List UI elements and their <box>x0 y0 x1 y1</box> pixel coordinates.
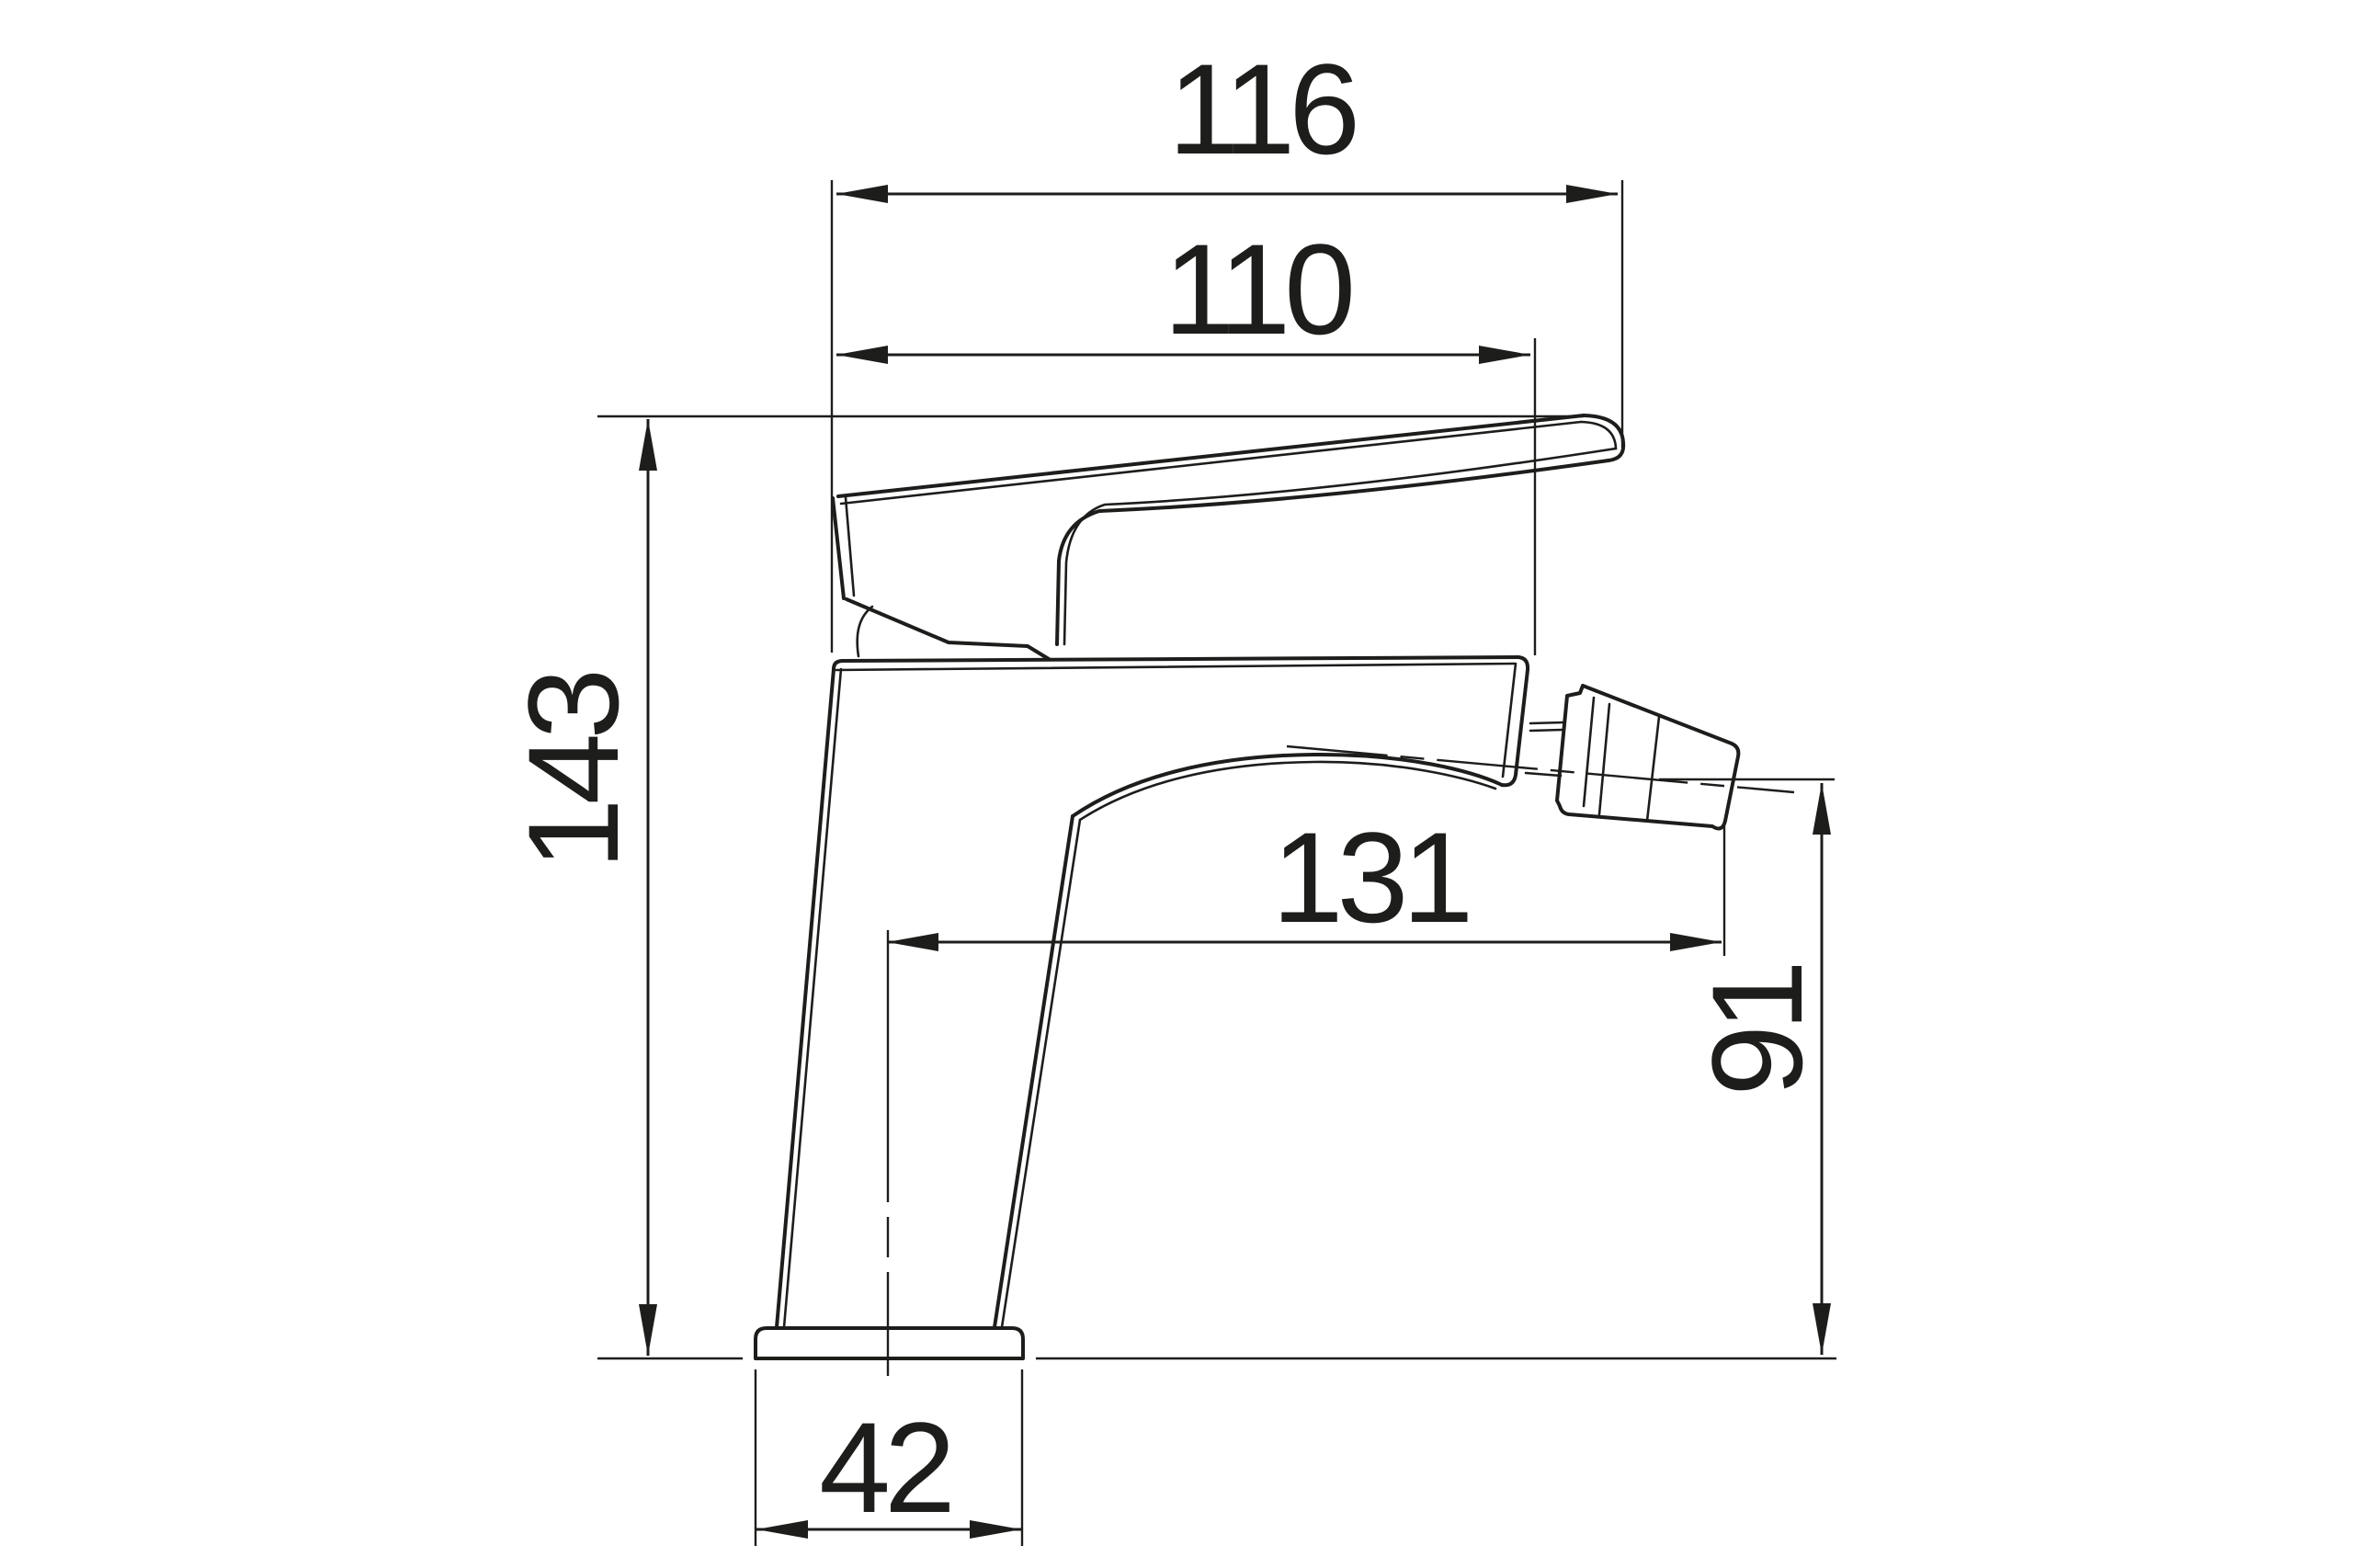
aerator-stem-bottom <box>1526 773 1561 776</box>
handle-tip-cap-inner <box>1581 422 1616 449</box>
dimension-label-131: 131 <box>1272 805 1469 949</box>
aerator-collar-seam-1 <box>1584 698 1594 806</box>
aerator-collar-seam-2 <box>1599 704 1609 814</box>
arrowhead-bottom <box>1813 1303 1831 1355</box>
cartridge-dome-arc <box>858 607 872 656</box>
outlet-axis-centerline <box>1287 746 1794 792</box>
dimension-42: 42 <box>756 1369 1022 1546</box>
dimension-label-116: 116 <box>1168 37 1355 181</box>
arrowhead-left <box>756 1520 808 1539</box>
faucet-dimension-drawing: 116 110 143 131 91 42 <box>0 0 2353 1568</box>
handle-underside <box>1057 460 1608 644</box>
arrowhead-bottom <box>639 1304 657 1356</box>
faucet-outline <box>756 415 1623 1358</box>
body-left-edge-inner <box>784 669 841 1327</box>
body-top-face-inner <box>836 664 1515 670</box>
aerator-stem-top-inner <box>1530 730 1563 731</box>
dimension-131: 131 <box>887 805 1724 1376</box>
dimension-label-91: 91 <box>1685 965 1829 1096</box>
arrowhead-left <box>836 185 888 203</box>
arrowhead-left <box>836 346 888 364</box>
dimension-label-143: 143 <box>501 674 645 870</box>
aerator-mid-seam <box>1647 717 1659 821</box>
arrowhead-right <box>1566 185 1618 203</box>
technical-drawing-page: 116 110 143 131 91 42 <box>0 0 2353 1568</box>
arrowhead-right <box>1670 933 1722 951</box>
dimension-110: 110 <box>836 217 1535 655</box>
base-plinth <box>756 1328 1023 1358</box>
spout-tip-face-inner <box>1503 664 1516 777</box>
body-left-edge <box>777 669 834 1327</box>
arrowhead-left <box>887 933 938 951</box>
handle-lower-left-edge <box>847 599 1049 659</box>
handle-left-face-inner <box>846 497 854 596</box>
handle-underside-inner <box>1064 449 1616 644</box>
handle-top-edge <box>838 415 1584 496</box>
arrowhead-top <box>1813 783 1831 835</box>
body-right-edge-inner <box>1002 820 1080 1327</box>
body-right-edge <box>995 816 1073 1327</box>
dimension-label-42: 42 <box>819 1395 949 1540</box>
arrowhead-top <box>639 419 657 471</box>
dimension-label-110: 110 <box>1164 217 1351 361</box>
handle-left-face <box>833 498 844 598</box>
arrowhead-right <box>1479 346 1530 364</box>
aerator-stem-top <box>1530 722 1563 723</box>
handle-top-edge-inner <box>841 422 1581 504</box>
arrowhead-right <box>970 1520 1021 1539</box>
